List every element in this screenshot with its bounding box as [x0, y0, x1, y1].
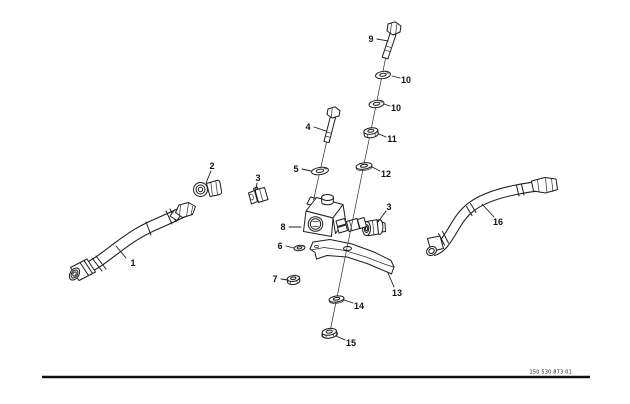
bolt-4 [324, 107, 340, 143]
callout-1: 1 [116, 246, 136, 268]
hose-1 [67, 203, 195, 282]
drawing-number: 150 530 873 01 [529, 370, 572, 376]
callouts: 1 2 3 3 4 5 6 7 [116, 34, 503, 348]
callout-label-16: 16 [493, 217, 503, 227]
callout-label-10-lower: 10 [391, 103, 401, 113]
fitting-3-right [363, 220, 386, 236]
callout-3-right: 3 [378, 202, 392, 222]
nut-11 [363, 127, 378, 139]
washer-14 [329, 295, 345, 304]
fitting-3-left [249, 187, 269, 204]
washer-5 [311, 166, 329, 175]
callout-label-2: 2 [209, 161, 214, 171]
parts-diagram-canvas: 1 2 3 3 4 5 6 7 [0, 0, 630, 404]
nut-7 [287, 275, 301, 285]
hose-16 [425, 178, 558, 258]
callout-label-12: 12 [381, 169, 391, 179]
washer-10-lower [369, 99, 385, 108]
callout-14: 14 [344, 300, 364, 311]
callout-label-6: 6 [277, 241, 282, 251]
callout-16: 16 [482, 204, 503, 227]
bracket-13 [310, 240, 394, 275]
callout-12: 12 [372, 167, 391, 179]
callout-label-11: 11 [387, 134, 397, 144]
callout-4: 4 [305, 122, 326, 132]
callout-label-4: 4 [305, 122, 310, 132]
valve-block-8 [304, 195, 367, 237]
hose-1-end-fitting-right [170, 203, 196, 221]
callout-label-3-right: 3 [386, 202, 391, 212]
callout-label-8: 8 [280, 222, 285, 232]
washer-10-upper [375, 70, 391, 79]
callout-label-3-left: 3 [255, 173, 260, 183]
callout-15: 15 [336, 336, 356, 348]
callout-label-13: 13 [392, 288, 402, 298]
callout-label-15: 15 [346, 338, 356, 348]
callout-label-1: 1 [130, 258, 135, 268]
callout-10-lower: 10 [384, 103, 401, 113]
callout-label-9: 9 [368, 34, 373, 44]
hose-16-end-fitting-right [532, 178, 558, 194]
callout-label-10-upper: 10 [401, 75, 411, 85]
callout-10-upper: 10 [392, 75, 411, 85]
callout-label-14: 14 [354, 301, 364, 311]
callout-13: 13 [388, 273, 402, 298]
callout-label-5: 5 [293, 164, 298, 174]
callout-label-7: 7 [272, 274, 277, 284]
elbow-fitting-2 [194, 180, 222, 196]
callout-6: 6 [277, 241, 294, 251]
callout-5: 5 [293, 164, 311, 174]
callout-2: 2 [206, 161, 215, 183]
callout-7: 7 [272, 274, 288, 284]
callout-8: 8 [280, 222, 301, 232]
callout-11: 11 [379, 134, 397, 144]
nut-15 [321, 327, 338, 339]
washer-6 [294, 245, 306, 252]
callout-9: 9 [368, 34, 388, 44]
washer-12 [356, 162, 373, 172]
